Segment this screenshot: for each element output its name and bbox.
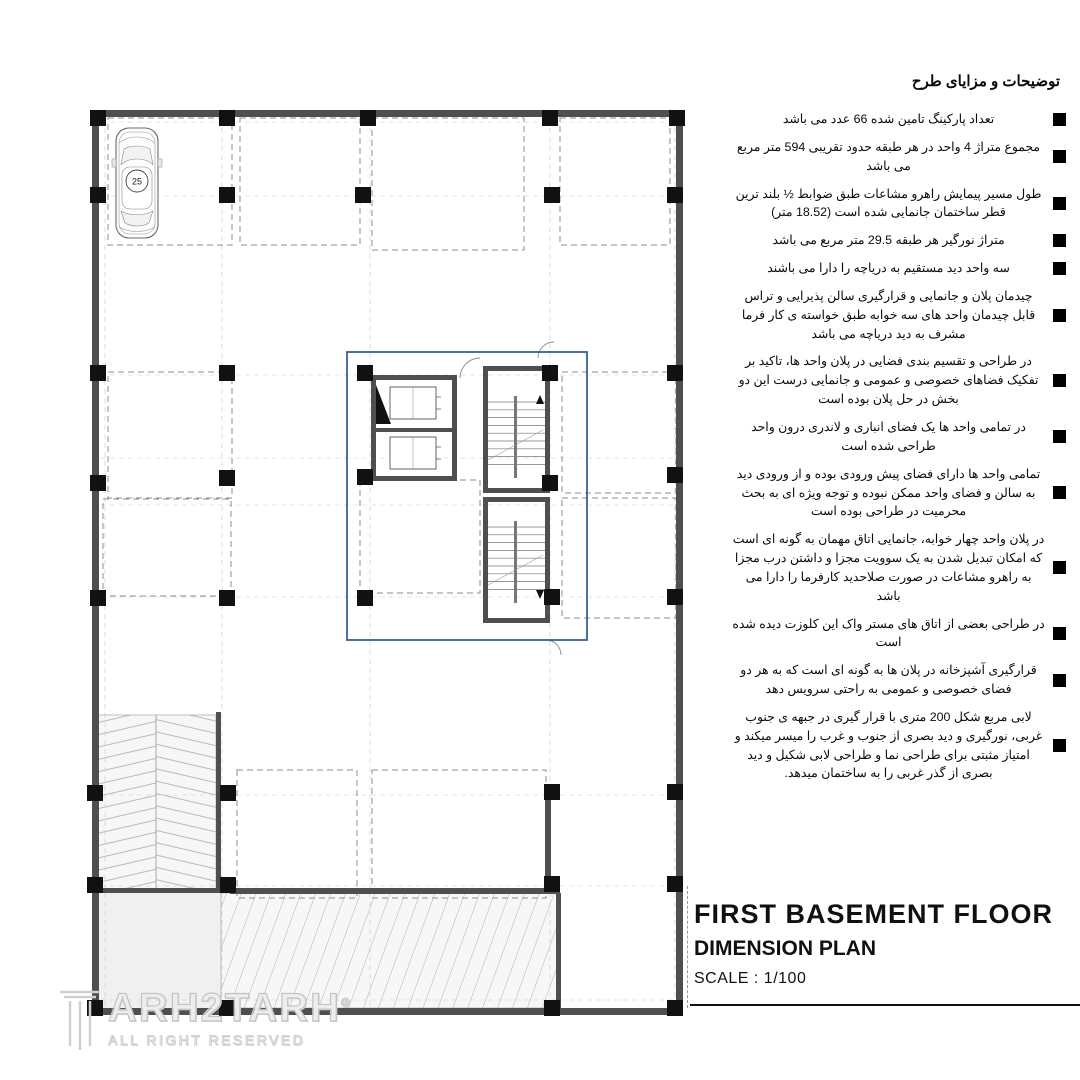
car-number-text: 25 — [132, 177, 142, 187]
bullet-square-icon — [1053, 234, 1066, 247]
note-text: طول مسیر پیمایش راهرو مشاعات طبق ضوابط ½… — [732, 185, 1045, 223]
note-text: قرارگیری آشپزخانه در پلان ها به گونه ای … — [732, 661, 1045, 699]
note-text: در طراحی بعضی از اتاق های مستر واک این ک… — [732, 615, 1045, 653]
note-item: در طراحی بعضی از اتاق های مستر واک این ک… — [732, 615, 1066, 653]
notes-title: توضیحات و مزایای طرح — [732, 72, 1060, 90]
bullet-square-icon — [1053, 627, 1066, 640]
watermark-subtitle: ALL RIGHT RESERVED — [108, 1032, 352, 1048]
note-item: مجموع متراژ 4 واحد در هر طبقه حدود تقریب… — [732, 138, 1066, 176]
note-item: در طراحی و تقسیم بندی فضایی در پلان واحد… — [732, 352, 1066, 409]
title-block: FIRST BASEMENT FLOOR DIMENSION PLAN SCAL… — [694, 899, 1080, 988]
watermark-logo-icon — [58, 988, 102, 1054]
note-text: در تمامی واحد ها یک فضای انباری و لاندری… — [732, 418, 1045, 456]
note-item: سه واحد دید مستقیم به دریاچه را دارا می … — [732, 259, 1066, 278]
bullet-square-icon — [1053, 561, 1066, 574]
note-text: تمامی واحد ها دارای فضای پیش ورودی بوده … — [732, 465, 1045, 522]
watermark-brand: ARH2TARH® — [108, 988, 352, 1028]
note-item: در تمامی واحد ها یک فضای انباری و لاندری… — [732, 418, 1066, 456]
note-item: چیدمان پلان و جانمایی و قرارگیری سالن پذ… — [732, 287, 1066, 344]
note-item: طول مسیر پیمایش راهرو مشاعات طبق ضوابط ½… — [732, 185, 1066, 223]
note-item: قرارگیری آشپزخانه در پلان ها به گونه ای … — [732, 661, 1066, 699]
plan-scale: SCALE : 1/100 — [694, 970, 1080, 988]
notes-list: تعداد پارکینگ تامین شده 66 عدد می باشدمج… — [732, 110, 1066, 783]
note-text: تعداد پارکینگ تامین شده 66 عدد می باشد — [732, 110, 1045, 129]
note-item: متراژ نورگیر هر طبقه 29.5 متر مربع می با… — [732, 231, 1066, 250]
plan-subtitle: DIMENSION PLAN — [694, 937, 1080, 961]
bullet-square-icon — [1053, 309, 1066, 322]
note-text: چیدمان پلان و جانمایی و قرارگیری سالن پذ… — [732, 287, 1045, 344]
plan-title: FIRST BASEMENT FLOOR — [694, 899, 1080, 930]
note-item: تمامی واحد ها دارای فضای پیش ورودی بوده … — [732, 465, 1066, 522]
note-text: متراژ نورگیر هر طبقه 29.5 متر مربع می با… — [732, 231, 1045, 250]
note-item: در پلان واحد چهار خوابه، جانمایی اتاق مه… — [732, 530, 1066, 605]
title-block-separator — [687, 886, 688, 1008]
elevators — [376, 385, 441, 469]
bullet-square-icon — [1053, 197, 1066, 210]
floor-areas — [97, 715, 557, 1008]
note-item: لابی مربع شکل 200 متری با قرار گیری در ج… — [732, 708, 1066, 783]
note-text: لابی مربع شکل 200 متری با قرار گیری در ج… — [732, 708, 1045, 783]
bullet-square-icon — [1053, 674, 1066, 687]
notes-panel: توضیحات و مزایای طرح تعداد پارکینگ تامین… — [732, 72, 1066, 792]
registered-mark: ® — [341, 996, 352, 1010]
note-item: تعداد پارکینگ تامین شده 66 عدد می باشد — [732, 110, 1066, 129]
page: 25 توضیحات و مزایای طرح تعداد پارکینگ تا… — [0, 0, 1080, 1080]
bullet-square-icon — [1053, 150, 1066, 163]
bullet-square-icon — [1053, 486, 1066, 499]
title-block-rule — [690, 1004, 1080, 1006]
note-text: در طراحی و تقسیم بندی فضایی در پلان واحد… — [732, 352, 1045, 409]
bullet-square-icon — [1053, 262, 1066, 275]
bullet-square-icon — [1053, 113, 1066, 126]
note-text: سه واحد دید مستقیم به دریاچه را دارا می … — [732, 259, 1045, 278]
note-text: در پلان واحد چهار خوابه، جانمایی اتاق مه… — [732, 530, 1045, 605]
bullet-square-icon — [1053, 430, 1066, 443]
bullet-square-icon — [1053, 374, 1066, 387]
watermark: ARH2TARH® ALL RIGHT RESERVED — [58, 988, 352, 1054]
bullet-square-icon — [1053, 739, 1066, 752]
note-text: مجموع متراژ 4 واحد در هر طبقه حدود تقریب… — [732, 138, 1045, 176]
